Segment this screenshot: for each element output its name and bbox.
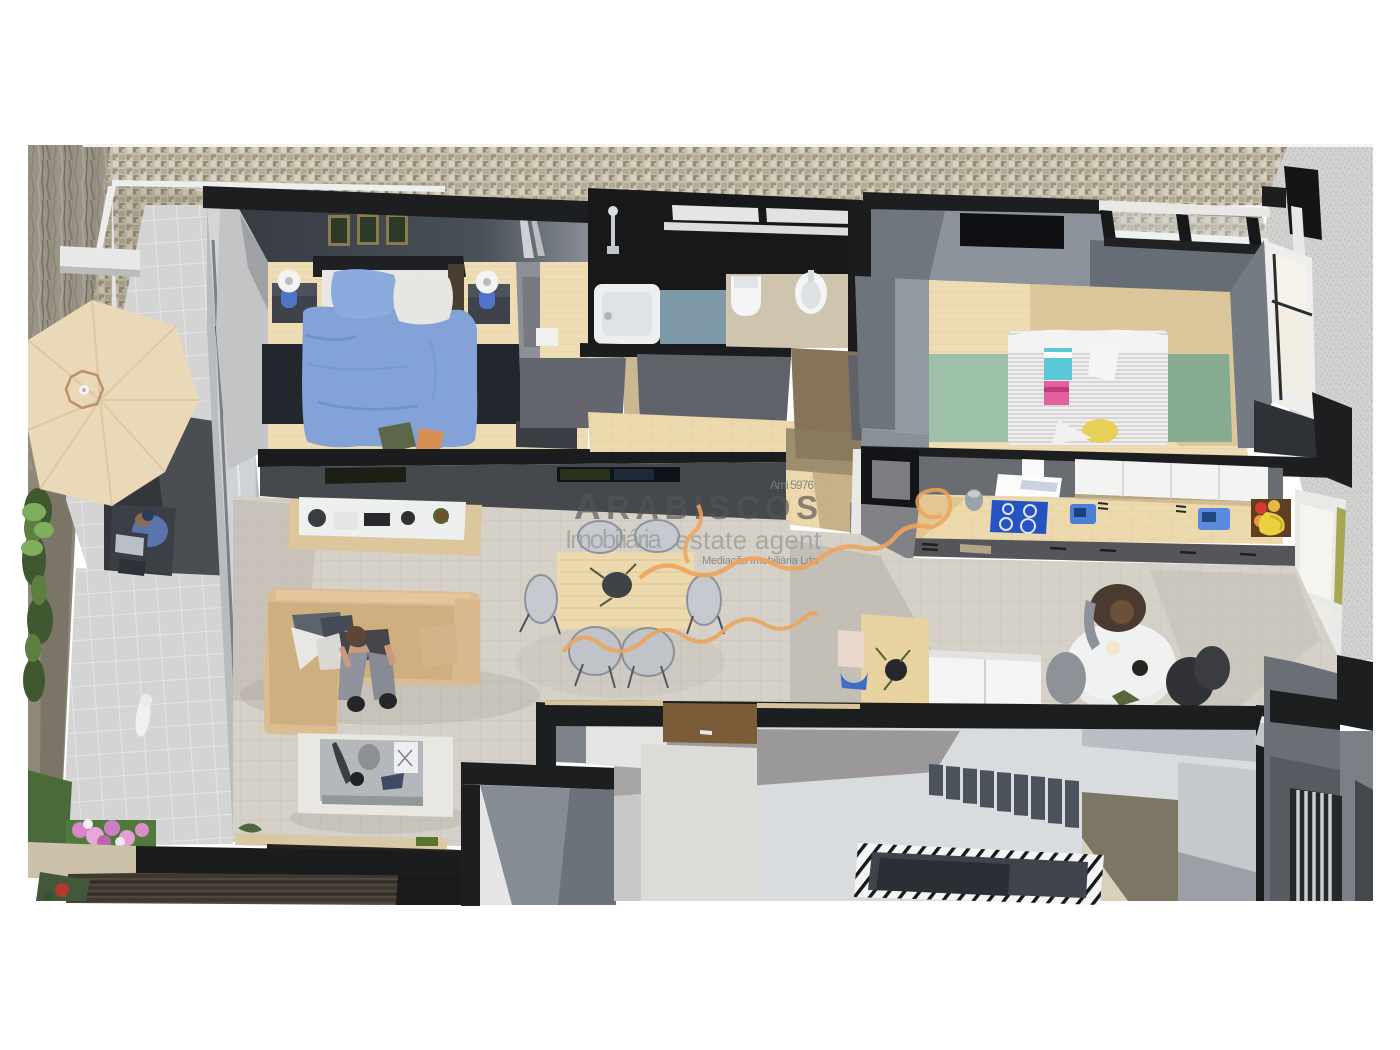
svg-text:Imobiliária: Imobiliária — [565, 524, 663, 554]
svg-text:ARABISCOS: ARABISCOS — [574, 486, 818, 527]
